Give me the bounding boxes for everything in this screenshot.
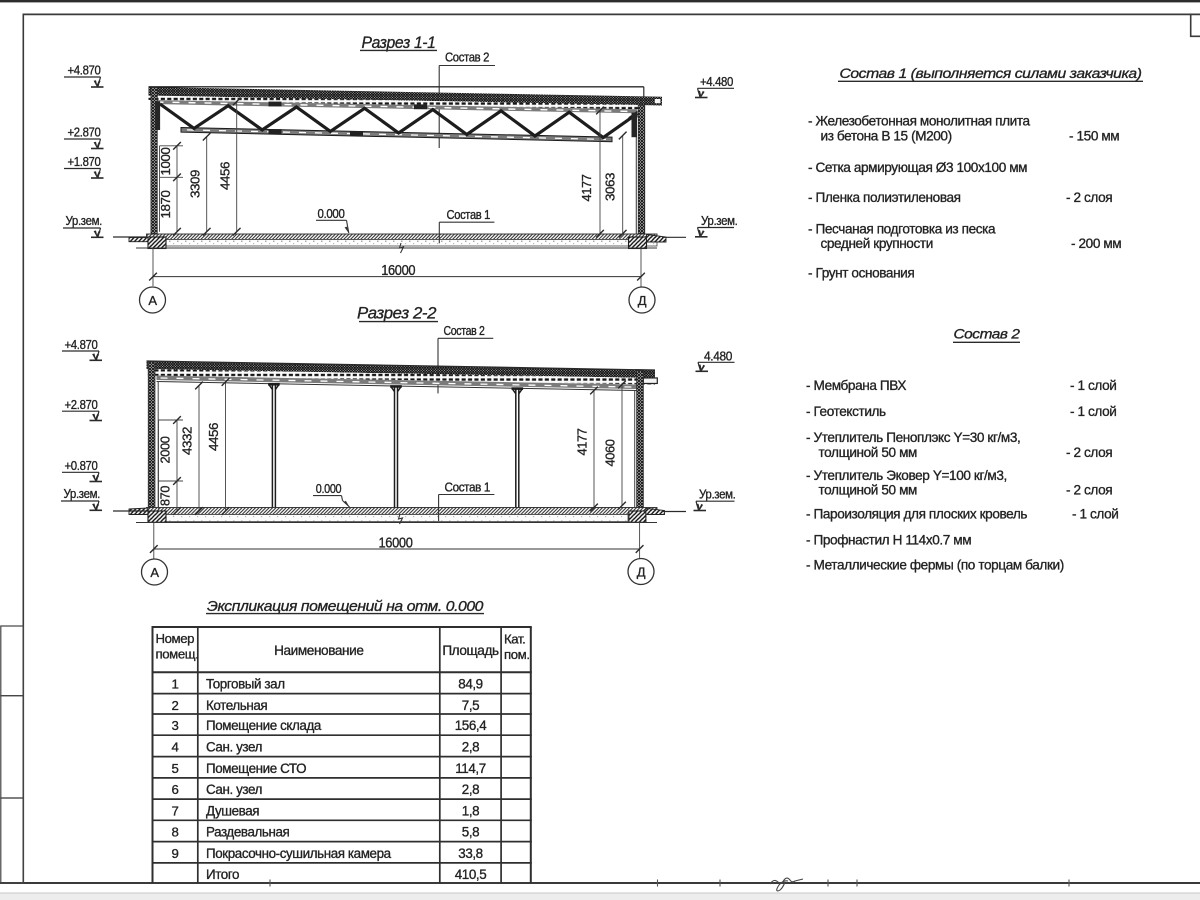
svg-text:толщиной 50 мм: толщиной 50 мм xyxy=(819,483,918,498)
svg-text:Помещение СТО: Помещение СТО xyxy=(206,761,306,776)
svg-text:Разрез 1-1: Разрез 1-1 xyxy=(362,34,436,52)
svg-text:4177: 4177 xyxy=(579,174,594,201)
svg-text:8: 8 xyxy=(172,825,179,840)
svg-text:Номер: Номер xyxy=(156,631,195,646)
svg-text:2: 2 xyxy=(172,698,179,713)
svg-text:156,4: 156,4 xyxy=(455,718,487,733)
svg-text:- Пароизоляция для плоских кро: - Пароизоляция для плоских кровель xyxy=(806,506,1027,521)
svg-text:+4.480: +4.480 xyxy=(700,74,733,89)
svg-text:3: 3 xyxy=(172,718,179,733)
svg-text:- 1 слой: - 1 слой xyxy=(1072,506,1118,521)
svg-text:из бетона В 15 (М200): из бетона В 15 (М200) xyxy=(821,129,952,144)
svg-text:- 2 слоя: - 2 слоя xyxy=(1066,483,1112,498)
svg-text:Д: Д xyxy=(638,293,647,308)
svg-text:1870: 1870 xyxy=(158,190,173,218)
svg-text:Состав 1: Состав 1 xyxy=(447,208,491,222)
svg-text:- Металлические фермы (по торц: - Металлические фермы (по торцам балки) xyxy=(806,557,1064,572)
svg-text:Экспликация помещений на отм.: Экспликация помещений на отм. 0.000 xyxy=(207,598,484,615)
svg-text:Ур.зем.: Ур.зем. xyxy=(701,213,738,228)
svg-text:7: 7 xyxy=(172,803,179,818)
svg-text:Торговый зал: Торговый зал xyxy=(206,677,285,692)
svg-text:3309: 3309 xyxy=(188,170,203,198)
svg-text:1: 1 xyxy=(172,677,179,692)
svg-text:0.000: 0.000 xyxy=(318,206,345,221)
svg-text:4: 4 xyxy=(172,739,179,754)
svg-text:Душевая: Душевая xyxy=(206,803,259,818)
svg-text:7,5: 7,5 xyxy=(462,698,479,713)
svg-text:- 1 слой: - 1 слой xyxy=(1070,404,1116,419)
svg-text:- Грунт основания: - Грунт основания xyxy=(808,266,914,281)
svg-text:1,8: 1,8 xyxy=(462,803,479,818)
svg-text:Состав 1 (выполняется силами з: Состав 1 (выполняется силами заказчика) xyxy=(840,66,1142,82)
svg-text:- 1 слой: - 1 слой xyxy=(1070,378,1116,393)
svg-text:2,8: 2,8 xyxy=(462,782,479,797)
svg-text:Наименование: Наименование xyxy=(274,643,363,658)
svg-text:- Железобетонная монолитная п: - Железобетонная монолитная плита xyxy=(808,114,1031,129)
svg-text:- Утеплитель Пеноплэкс Y=30 кг: - Утеплитель Пеноплэкс Y=30 кг/м3, xyxy=(806,430,1020,445)
svg-text:4177: 4177 xyxy=(575,428,590,455)
svg-text:5,8: 5,8 xyxy=(462,825,479,840)
svg-text:870: 870 xyxy=(158,486,173,506)
svg-text:114,7: 114,7 xyxy=(455,761,486,776)
svg-text:4060: 4060 xyxy=(603,439,618,466)
svg-text:16000: 16000 xyxy=(381,263,415,279)
svg-text:- 2 слоя: - 2 слоя xyxy=(1066,190,1112,205)
svg-text:Итого: Итого xyxy=(206,867,239,882)
svg-text:- Утеплитель Эковер Y=100 кг/м: - Утеплитель Эковер Y=100 кг/м3, xyxy=(806,468,1007,483)
svg-text:Покрасочно-сушильная камера: Покрасочно-сушильная камера xyxy=(206,846,392,861)
svg-text:толщиной 50 мм: толщиной 50 мм xyxy=(819,445,918,460)
svg-text:средней крупности: средней крупности xyxy=(821,236,933,251)
svg-text:Состав 1: Состав 1 xyxy=(445,481,491,495)
svg-text:- Сетка армирующая Ø3 100х100: - Сетка армирующая Ø3 100х100 мм xyxy=(808,160,1027,175)
svg-text:А: А xyxy=(148,293,157,308)
svg-text:- 150 мм: - 150 мм xyxy=(1069,129,1119,144)
svg-text:33,8: 33,8 xyxy=(458,846,482,861)
svg-text:+1.870: +1.870 xyxy=(68,154,101,169)
svg-text:+0.870: +0.870 xyxy=(65,458,98,473)
svg-text:Разрез 2-2: Разрез 2-2 xyxy=(357,305,436,323)
svg-text:1000: 1000 xyxy=(158,147,173,175)
svg-text:6: 6 xyxy=(172,782,179,797)
svg-text:84,9: 84,9 xyxy=(458,677,482,692)
svg-text:2,8: 2,8 xyxy=(462,739,479,754)
svg-text:4456: 4456 xyxy=(206,423,221,451)
svg-text:Состав 2: Состав 2 xyxy=(444,324,485,338)
svg-text:Ур.зем.: Ур.зем. xyxy=(64,486,101,501)
svg-text:А: А xyxy=(150,565,159,580)
svg-text:помещ.: помещ. xyxy=(156,647,199,662)
svg-text:+2.870: +2.870 xyxy=(65,397,98,412)
svg-text:4332: 4332 xyxy=(180,427,195,455)
svg-text:Ур.зем.: Ур.зем. xyxy=(699,486,736,501)
svg-text:16000: 16000 xyxy=(379,535,413,551)
svg-text:- Геотекстиль: - Геотекстиль xyxy=(806,404,886,419)
svg-text:Сан. узел: Сан. узел xyxy=(206,782,262,797)
svg-text:410,5: 410,5 xyxy=(455,867,487,882)
svg-text:- Пленка полиэтиленовая: - Пленка полиэтиленовая xyxy=(808,190,961,205)
svg-text:2000: 2000 xyxy=(158,436,173,463)
svg-text:+4.870: +4.870 xyxy=(68,63,101,78)
svg-text:- Мембрана ПВХ: - Мембрана ПВХ xyxy=(806,378,906,393)
svg-text:Раздевальная: Раздевальная xyxy=(206,825,290,840)
svg-text:пом.: пом. xyxy=(504,647,530,662)
svg-text:Состав 2: Состав 2 xyxy=(445,51,489,65)
svg-text:- 2 слоя: - 2 слоя xyxy=(1066,445,1112,460)
svg-text:Площадь: Площадь xyxy=(442,643,499,658)
svg-text:+4.870: +4.870 xyxy=(65,337,98,352)
svg-text:Состав 2: Состав 2 xyxy=(954,326,1021,342)
svg-text:5: 5 xyxy=(172,761,179,776)
svg-text:Сан. узел: Сан. узел xyxy=(206,739,262,754)
svg-text:4.480: 4.480 xyxy=(704,349,732,364)
svg-text:Котельная: Котельная xyxy=(206,698,267,713)
svg-text:Д: Д xyxy=(637,565,646,580)
svg-text:9: 9 xyxy=(172,846,179,861)
svg-text:- Профнастил Н 114х0.7 мм: - Профнастил Н 114х0.7 мм xyxy=(806,533,971,548)
svg-text:4456: 4456 xyxy=(218,162,233,190)
svg-text:3063: 3063 xyxy=(603,173,618,201)
svg-text:+2.870: +2.870 xyxy=(68,125,101,140)
svg-text:Ур.зем.: Ур.зем. xyxy=(66,213,103,228)
svg-text:0.000: 0.000 xyxy=(316,481,342,496)
svg-text:- Песчаная подготовка из песка: - Песчаная подготовка из песка xyxy=(808,222,996,237)
svg-text:Помещение склада: Помещение склада xyxy=(206,718,322,733)
svg-text:Кат.: Кат. xyxy=(504,632,525,647)
svg-text:- 200 мм: - 200 мм xyxy=(1071,236,1121,251)
